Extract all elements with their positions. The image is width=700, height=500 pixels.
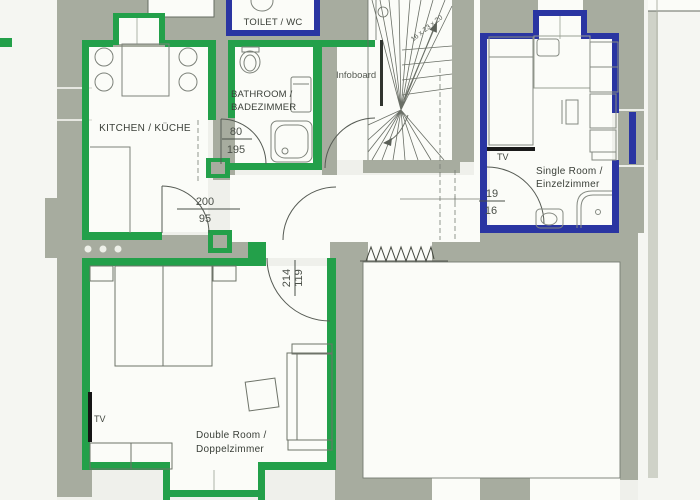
dim-single-top: 19 <box>486 188 498 200</box>
right-page-margin <box>638 0 700 500</box>
double-room-label-line2: Doppelzimmer <box>196 444 264 455</box>
floor-plan-page: Infoboard 16 x 23 x 20 <box>0 0 700 500</box>
infoboard-label: Infoboard <box>336 70 376 81</box>
dim-double-second: 119 <box>293 269 305 287</box>
toilet-label: TOILET / WC <box>244 17 303 28</box>
single-room-label-line1: Single Room / <box>536 166 603 177</box>
wall-dot <box>100 246 107 253</box>
dim-kitchen-bottom: 95 <box>199 213 211 225</box>
dim-bathroom-bottom: 195 <box>227 144 245 156</box>
dim-single-bottom: 16 <box>485 205 497 217</box>
dim-kitchen-top: 200 <box>196 196 214 208</box>
dim-bathroom-top: 80 <box>230 126 242 138</box>
wall-dots <box>85 246 122 253</box>
tv-single-room <box>487 147 535 151</box>
tv-double-room <box>88 392 92 442</box>
single-room-label-line2: Einzelzimmer <box>536 179 600 190</box>
tv-label-double: TV <box>94 414 106 424</box>
bathroom-label-line1: BATHROOM / <box>231 89 293 100</box>
floor-plan-svg: Infoboard 16 x 23 x 20 <box>0 0 700 500</box>
wall-dot <box>85 246 92 253</box>
wall-dot <box>115 246 122 253</box>
bathroom-label-line2: BADEZIMMER <box>231 102 296 113</box>
dim-double-first: 214 <box>281 269 293 287</box>
tv-label-single: TV <box>497 152 509 162</box>
infoboard-panel <box>380 40 383 106</box>
double-room-label-line1: Double Room / <box>196 430 267 441</box>
kitchen-label: KITCHEN / KÜCHE <box>99 122 191 134</box>
